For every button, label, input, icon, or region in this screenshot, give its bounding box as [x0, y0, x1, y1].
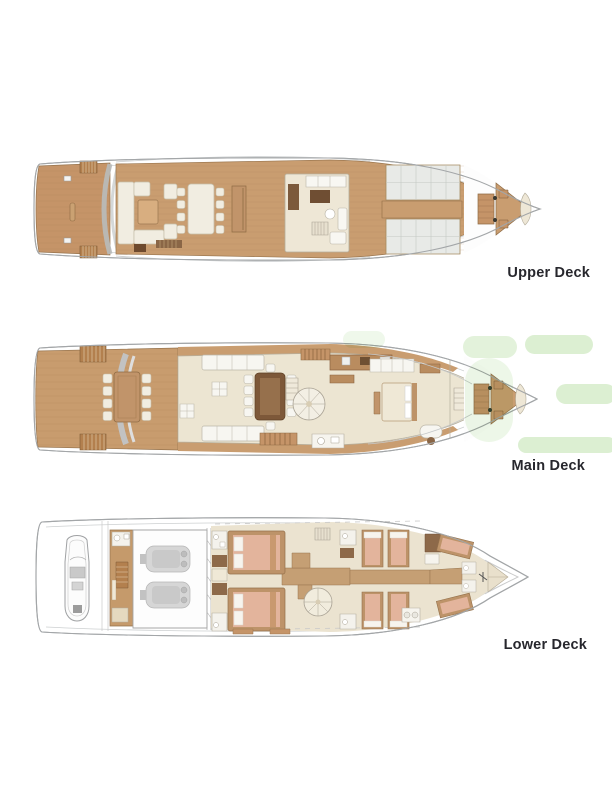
tender — [65, 536, 89, 622]
ensuite-bathrooms — [212, 531, 227, 631]
engine — [140, 582, 190, 608]
walkway — [382, 201, 462, 218]
salon-sofa — [202, 426, 264, 441]
upper-deck-plan — [30, 152, 545, 267]
round-table — [325, 209, 335, 219]
page: Upper Deck Main Deck Lower Deck — [0, 0, 612, 792]
bow-seating — [464, 165, 531, 253]
vip-cabin-starboard — [228, 588, 285, 631]
deck-hatch — [70, 203, 75, 221]
stairs — [315, 528, 330, 540]
side-ladder — [260, 433, 297, 445]
aft-deck — [35, 346, 178, 450]
side-ladder — [301, 349, 330, 360]
salon-sofa — [202, 355, 264, 370]
deck-label-lower: Lower Deck — [504, 637, 587, 653]
deck-label-upper: Upper Deck — [507, 265, 590, 281]
bow-seating — [464, 356, 526, 442]
sky-lounge — [285, 174, 349, 252]
lower-deck-plan — [30, 510, 545, 642]
crew-stairs — [116, 562, 128, 588]
cabinet-dark — [288, 184, 299, 210]
deck-fitting — [64, 176, 71, 181]
aft-boat-deck — [36, 161, 118, 258]
watermark-blob — [556, 384, 612, 404]
armchair — [164, 184, 177, 199]
deck-label-main: Main Deck — [511, 458, 585, 474]
storage-box — [134, 244, 146, 252]
main-deck-plan — [30, 338, 545, 458]
tv-console — [310, 190, 330, 203]
staircase — [312, 222, 328, 235]
deck-fitting — [64, 238, 71, 243]
armchair — [164, 224, 177, 239]
engine-room — [133, 528, 211, 630]
laundry — [402, 608, 420, 622]
vip-cabin-port — [228, 531, 285, 574]
accommodation — [211, 521, 518, 632]
foyer-stairs — [454, 388, 465, 410]
day-head — [312, 434, 344, 448]
skylight-panels — [382, 165, 462, 254]
crew-quarters-aft — [110, 530, 133, 626]
engine — [140, 546, 190, 572]
coffee-table — [138, 200, 158, 224]
spiral-staircase — [304, 588, 332, 616]
bar-cabinet — [232, 186, 246, 232]
sofa — [420, 425, 442, 438]
